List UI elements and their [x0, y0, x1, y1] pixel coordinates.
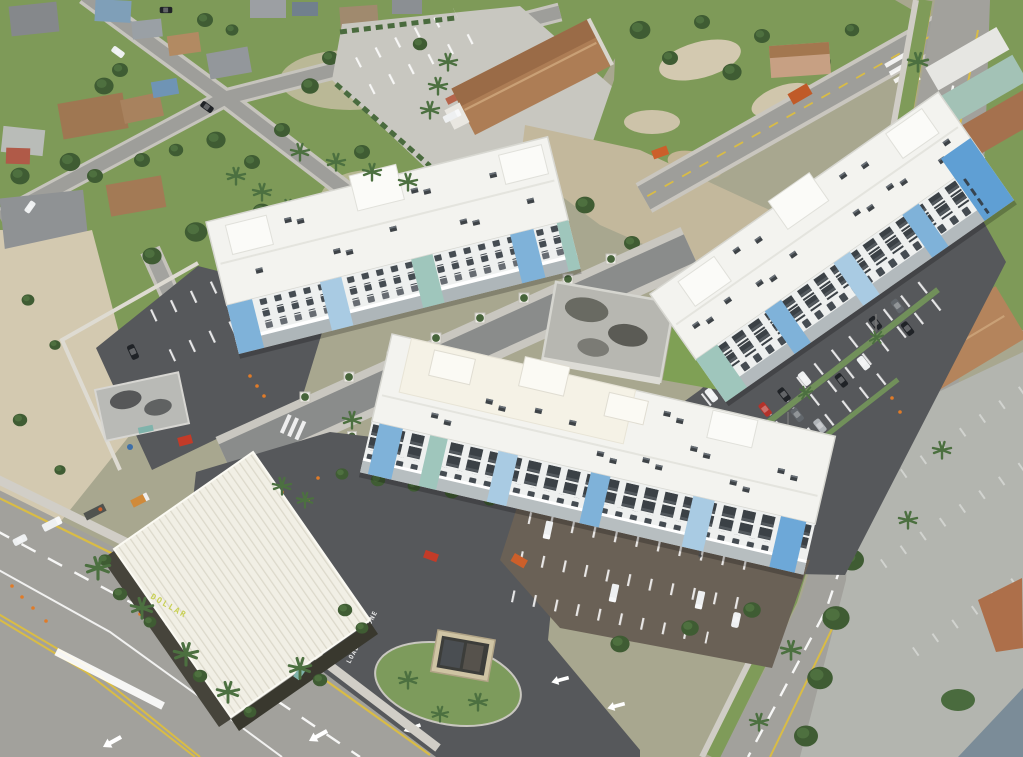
- dumpster-enclosure: [431, 630, 495, 681]
- small-house: [769, 42, 831, 78]
- house: [250, 0, 286, 18]
- traffic-cone: [262, 394, 266, 398]
- tree: [794, 726, 818, 747]
- tree: [413, 38, 427, 51]
- car: [160, 7, 173, 13]
- sand-patch: [624, 110, 680, 134]
- house: [9, 2, 60, 37]
- traffic-cone: [898, 410, 902, 414]
- traffic-cone: [255, 384, 259, 388]
- house: [392, 0, 422, 14]
- aerial-photo: LOADING ZONE DOLLAR: [0, 0, 1023, 757]
- traffic-cone: [248, 374, 252, 378]
- tree: [807, 667, 833, 689]
- aerial-photo-canvas: LOADING ZONE DOLLAR: [0, 0, 1023, 757]
- house: [6, 148, 31, 165]
- blue-barrel: [127, 444, 133, 450]
- traffic-cone: [890, 396, 894, 400]
- house: [292, 2, 318, 16]
- tree: [575, 197, 594, 214]
- tree: [822, 606, 849, 630]
- house: [131, 18, 163, 39]
- shrub-island: [941, 689, 975, 711]
- house: [94, 0, 131, 23]
